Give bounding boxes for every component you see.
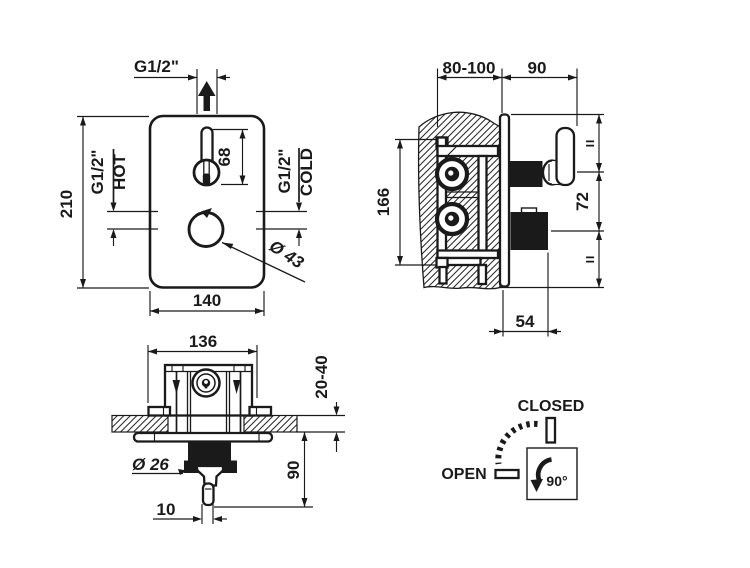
arrow-2040-top (334, 407, 340, 416)
body-front-rail (479, 156, 487, 252)
arrow-outlet-left (188, 75, 197, 81)
foot-right (250, 407, 272, 416)
wall-band-left (112, 416, 168, 433)
side-view: 80-100 90 166 = 72 = (374, 59, 604, 337)
dim-height: 210 (57, 190, 76, 218)
label-open: OPEN (441, 466, 486, 483)
dim-wall-depth: 80-100 (443, 59, 496, 78)
arrow-chain-lever-b (596, 172, 602, 181)
dim-width: 140 (193, 291, 221, 310)
arrow-136-left (148, 349, 157, 355)
arrow-chain-bottom (596, 279, 602, 288)
arrow-136-right (248, 349, 257, 355)
body-top-rail (438, 146, 499, 156)
outlet-arrow-shaft (204, 95, 211, 111)
arrow-210-bottom (80, 279, 86, 288)
arrow-outlet-right (217, 75, 226, 81)
dim-body-width: 136 (189, 332, 217, 351)
arrow-90tv-bottom (302, 498, 308, 507)
arrow-chain-lever-a (596, 163, 602, 172)
plate-side (500, 115, 509, 287)
arrow-210-top (80, 117, 86, 126)
arrow-hot-up (111, 229, 117, 238)
dim-knob-diameter: Ø 43 (266, 236, 308, 272)
arrow-140-left (150, 308, 159, 314)
handle-closed-position (547, 418, 556, 443)
arrow-90tv-top (302, 432, 308, 441)
arrow-hot-down (111, 203, 117, 212)
dim-lever-height: 68 (215, 148, 234, 167)
knob-side (511, 212, 549, 250)
dim-body-height: 166 (374, 188, 393, 216)
arrow-chain-knob-b (596, 231, 602, 240)
port-hot-dot (448, 170, 453, 175)
lever-stem-top-view (203, 484, 214, 506)
outlet-arrow-head (198, 81, 216, 96)
technical-drawing-shower-mixer: G1/2" 210 G1/2" HOT (0, 0, 750, 563)
port-cold-dot (448, 215, 453, 220)
label-rotation-angle: 90° (546, 473, 567, 489)
arrow-cold-up (296, 229, 302, 238)
dim-cold-thread: G1/2" (275, 149, 294, 194)
arrow-cold-down (296, 203, 302, 212)
dim-equal-bottom: = (585, 252, 594, 269)
dim-lever-tip: 10 (157, 500, 176, 519)
handle-open-position (496, 470, 519, 478)
arrow-140-right (255, 308, 264, 314)
label-closed: CLOSED (518, 398, 585, 415)
cartridge-dot (204, 380, 208, 384)
lever-blade-side (557, 128, 575, 185)
body-leg-left (440, 267, 447, 284)
dim-stem-diameter: Ø 26 (132, 455, 169, 474)
arrow-10-right (213, 516, 222, 522)
front-view: G1/2" 210 G1/2" HOT (57, 57, 316, 316)
rotation-diagram: CLOSED OPEN 90° (441, 398, 584, 500)
arrow-10-left (193, 516, 202, 522)
dim-side-protrusion: 90 (528, 59, 547, 78)
arrow-166-top (397, 140, 403, 149)
dim-equal-top: = (585, 136, 594, 153)
wall-band-right (244, 416, 297, 433)
arrow-80100-right (493, 75, 502, 81)
arrow-2040-bottom (334, 432, 340, 441)
body-leg-right (479, 265, 487, 284)
arrow-chain-top (596, 115, 602, 124)
foot-left (149, 407, 171, 416)
lever-stem-side (510, 161, 543, 187)
top-view: 136 20-40 90 Ø 26 10 (112, 332, 345, 524)
dim-top-protrusion: 90 (284, 461, 303, 480)
dim-knob-protrusion: 54 (516, 312, 535, 331)
arrow-166-bottom (397, 256, 403, 265)
knob-top-view (188, 442, 231, 463)
arrow-chain-knob-a (596, 222, 602, 231)
arrow-54-left (494, 329, 503, 335)
drawing-svg: G1/2" 210 G1/2" HOT (0, 0, 750, 563)
dim-hot-thread: G1/2" (88, 150, 107, 195)
cartridge-keyway (205, 385, 208, 388)
knob-circle (189, 213, 223, 247)
dim-outlet-thread: G1/2" (134, 57, 179, 76)
dim-handle-spacing: 72 (573, 192, 592, 211)
arrow-90-left (502, 75, 511, 81)
lever-blade-tip (203, 174, 210, 185)
arrow-54-right (548, 329, 557, 335)
dim-finish-depth: 20-40 (312, 355, 331, 398)
arrow-90-right (568, 75, 577, 81)
